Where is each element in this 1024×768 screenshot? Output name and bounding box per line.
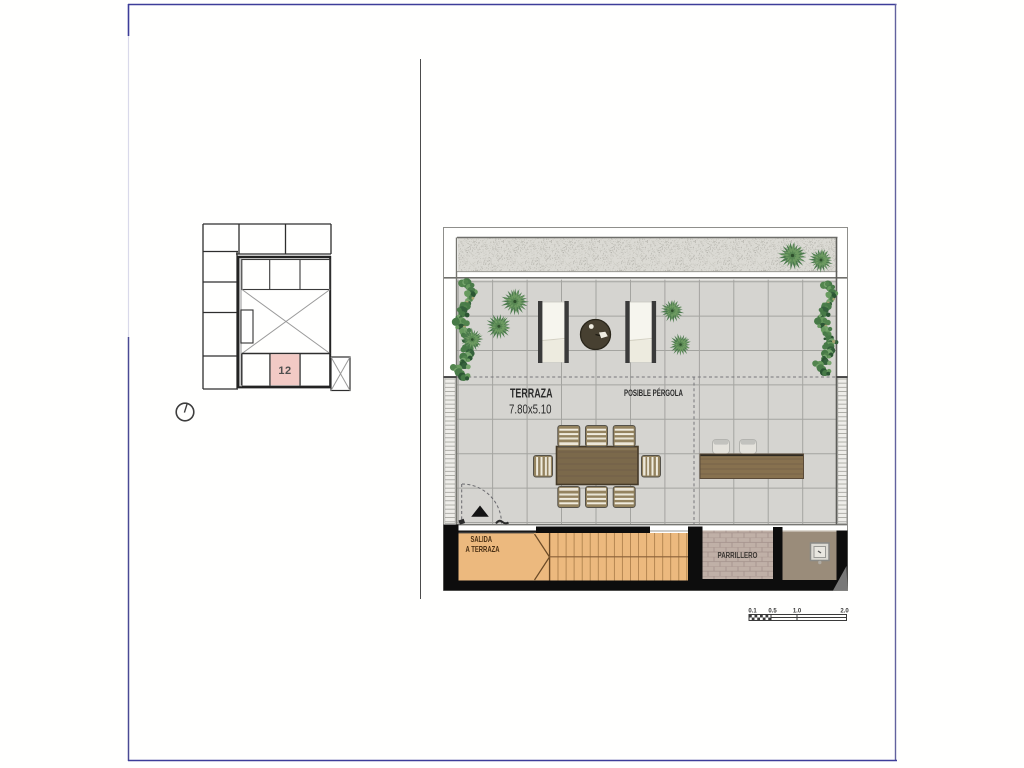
svg-text:0.1: 0.1 bbox=[748, 609, 757, 615]
svg-text:7.80x5.10: 7.80x5.10 bbox=[509, 403, 552, 417]
svg-text:2.0: 2.0 bbox=[840, 609, 849, 615]
svg-text:PARRILLERO: PARRILLERO bbox=[718, 551, 758, 560]
svg-text:POSIBLE PÉRGOLA: POSIBLE PÉRGOLA bbox=[624, 388, 683, 399]
svg-text:TERRAZA: TERRAZA bbox=[510, 386, 553, 401]
svg-text:0.5: 0.5 bbox=[768, 609, 777, 615]
svg-text:A TERRAZA: A TERRAZA bbox=[466, 544, 500, 554]
svg-text:1.0: 1.0 bbox=[793, 609, 802, 615]
svg-text:12: 12 bbox=[278, 365, 291, 377]
svg-text:SALIDA: SALIDA bbox=[471, 534, 493, 544]
